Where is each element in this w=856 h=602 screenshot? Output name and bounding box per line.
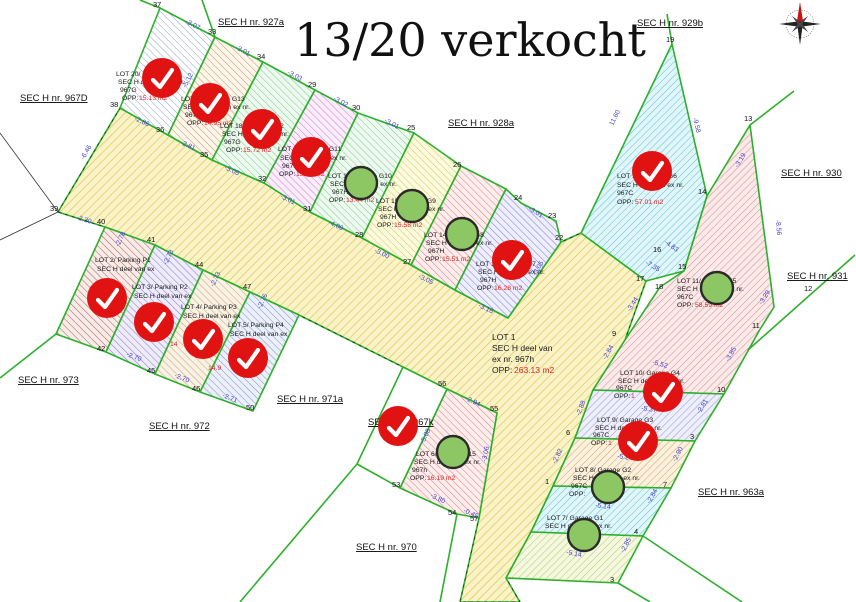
point-number: 3 [610, 575, 614, 584]
point-number: 25 [407, 123, 415, 132]
point-number: 38 [110, 100, 118, 109]
point-number: 40 [97, 217, 105, 226]
section-label-929b: SEC H nr. 929b [637, 18, 703, 29]
svg-text:967H: 967H [380, 214, 396, 221]
available-marker [701, 272, 733, 304]
point-number: 10 [717, 385, 725, 394]
svg-text:OPP:: OPP: [677, 302, 693, 309]
svg-text:967C: 967C [593, 432, 609, 439]
boundary-line [0, 212, 58, 240]
svg-text:OPP:: OPP: [617, 199, 633, 206]
svg-text:15.58 m2: 15.58 m2 [394, 222, 423, 229]
svg-text:OPP:: OPP: [477, 285, 493, 292]
svg-text:LOT 4/ Parking P3: LOT 4/ Parking P3 [181, 304, 237, 311]
svg-text:LOT 3/ Parking P2: LOT 3/ Parking P2 [132, 284, 188, 291]
svg-text:967H: 967H [428, 248, 444, 255]
boundary-ray [0, 334, 56, 378]
svg-text:1: 1 [631, 393, 635, 400]
point-number: 50 [246, 403, 254, 412]
svg-text:SEC H deel van: SEC H deel van [492, 343, 553, 353]
svg-text:OPP:: OPP: [569, 491, 585, 498]
svg-text:OPP:: OPP: [591, 440, 607, 447]
boundary-ray [440, 514, 457, 602]
point-number: 36 [156, 125, 164, 134]
point-number: 34 [257, 52, 265, 61]
svg-text:OPP:: OPP: [279, 171, 295, 178]
svg-text:OPP:: OPP: [614, 393, 630, 400]
point-number: 14 [698, 187, 706, 196]
point-number: 42 [97, 344, 105, 353]
sold-marker [142, 58, 182, 98]
point-number: 16 [653, 245, 661, 254]
svg-text:OPP:: OPP: [187, 120, 203, 127]
svg-text:LOT 2/ Parking P1: LOT 2/ Parking P1 [95, 257, 151, 264]
sold-marker [291, 137, 331, 177]
point-number: 56 [438, 379, 446, 388]
section-label-970: SEC H nr. 970 [356, 542, 417, 553]
svg-text:16.19 m2: 16.19 m2 [427, 475, 456, 482]
measurement-label: -8.56 [774, 220, 782, 236]
svg-text:OPP:: OPP: [377, 222, 393, 229]
point-number: 28 [355, 230, 363, 239]
svg-text:967C: 967C [677, 294, 693, 301]
sold-marker [632, 151, 672, 191]
section-label-972: SEC H nr. 972 [149, 421, 210, 432]
point-number: 9 [612, 329, 616, 338]
section-label-931: SEC H nr. 931 [787, 271, 848, 282]
svg-text:967C: 967C [571, 483, 587, 490]
available-marker [396, 190, 428, 222]
point-number: 45 [147, 366, 155, 375]
section-label-963a: SEC H nr. 963a [698, 487, 765, 498]
cadastral-plan: LOT 20/ Garage G14 SEC H deel van ex nr.… [0, 0, 856, 602]
sold-marker [242, 109, 282, 149]
svg-text:OPP:: OPP: [122, 95, 138, 102]
point-number: 1 [545, 477, 549, 486]
point-number: 17 [636, 274, 644, 283]
point-number: 46 [192, 384, 200, 393]
svg-text:ex nr. 967h: ex nr. 967h [492, 354, 534, 364]
point-number: 19 [666, 35, 674, 44]
svg-text:SEC H deel van ex: SEC H deel van ex [134, 293, 192, 300]
sold-marker [618, 421, 658, 461]
section-label-927a: SEC H nr. 927a [218, 17, 285, 28]
svg-text:LOT 5/ Parking P4: LOT 5/ Parking P4 [228, 322, 284, 329]
point-number: 4 [634, 527, 638, 536]
point-number: 13 [744, 114, 752, 123]
svg-text:OPP:: OPP: [410, 475, 426, 482]
svg-text:967G: 967G [224, 139, 241, 146]
sold-marker [183, 319, 223, 359]
svg-text:16.28 m2: 16.28 m2 [494, 285, 523, 292]
svg-text:967G: 967G [120, 87, 137, 94]
boundary-line [0, 133, 58, 212]
point-number: 24 [514, 193, 522, 202]
svg-text:SEC H deel van ex: SEC H deel van ex [230, 331, 288, 338]
compass-rose-icon [779, 2, 821, 45]
svg-text:14: 14 [170, 341, 178, 348]
point-number: 53 [392, 480, 400, 489]
svg-text:15.51 m2: 15.51 m2 [442, 256, 471, 263]
boundary-ray [618, 583, 650, 602]
point-number: 39 [50, 204, 58, 213]
point-number: 30 [352, 103, 360, 112]
section-label-967d: SEC H nr. 967D [20, 93, 88, 104]
svg-text:OPP:: OPP: [492, 365, 512, 375]
sold-marker [87, 278, 127, 318]
section-label-928a: SEC H nr. 928a [448, 118, 515, 129]
svg-text:967C: 967C [616, 385, 632, 392]
svg-text:967C: 967C [617, 190, 633, 197]
sold-marker [134, 302, 174, 342]
svg-text:LOT 1: LOT 1 [492, 332, 516, 342]
boundary-ray [750, 91, 794, 125]
section-label-930: SEC H nr. 930 [781, 168, 842, 179]
available-marker [568, 519, 600, 551]
sold-marker [492, 240, 532, 280]
plan-canvas: LOT 20/ Garage G14 SEC H deel van ex nr.… [0, 0, 856, 602]
available-marker [446, 218, 478, 250]
point-number: 15 [678, 262, 686, 271]
svg-text:OPP:: OPP: [425, 256, 441, 263]
svg-text:263.13 m2: 263.13 m2 [514, 365, 554, 375]
svg-text:967H: 967H [480, 277, 496, 284]
point-number: 12 [804, 284, 812, 293]
sold-marker [378, 406, 418, 446]
section-label-971a: SEC H nr. 971a [277, 394, 344, 405]
measurement-label: 11.60 [609, 109, 623, 127]
boundary-ray [240, 464, 357, 602]
svg-text:SEC H deel van ex: SEC H deel van ex [183, 313, 241, 320]
point-number: 41 [147, 235, 155, 244]
point-number: 22 [555, 233, 563, 242]
svg-text:967h: 967h [412, 467, 427, 474]
svg-text:OPP:: OPP: [226, 147, 242, 154]
point-number: 31 [303, 204, 311, 213]
point-number: 47 [243, 282, 251, 291]
section-label-973: SEC H nr. 973 [18, 375, 79, 386]
point-number: 6 [566, 428, 570, 437]
sold-marker [643, 372, 683, 412]
point-number: 27 [403, 257, 411, 266]
svg-text:1: 1 [608, 440, 612, 447]
available-marker [345, 167, 377, 199]
point-number: 23 [548, 211, 556, 220]
point-number: 37 [153, 0, 161, 9]
page-title: 13/20 verkocht [294, 13, 646, 67]
svg-text:SEC H deel van ex: SEC H deel van ex [97, 266, 155, 273]
point-number: 55 [490, 404, 498, 413]
point-number: 35 [200, 150, 208, 159]
svg-text:14.9: 14.9 [208, 365, 221, 372]
sold-marker [190, 83, 230, 123]
point-number: 33 [208, 27, 216, 36]
point-number: 3 [690, 432, 694, 441]
point-number: 7 [663, 480, 667, 489]
svg-text:OPP:: OPP: [329, 197, 345, 204]
boundary-ray [643, 536, 742, 602]
point-number: 11 [752, 321, 760, 330]
point-number: 54 [448, 508, 456, 517]
point-number: 26 [453, 160, 461, 169]
available-marker [437, 436, 469, 468]
sold-marker [228, 338, 268, 378]
point-number: 44 [195, 260, 203, 269]
point-number: 18 [655, 282, 663, 291]
point-number: 29 [308, 80, 316, 89]
available-marker [592, 471, 624, 503]
point-number: 32 [258, 174, 266, 183]
svg-text:57.01 m2: 57.01 m2 [635, 199, 664, 206]
